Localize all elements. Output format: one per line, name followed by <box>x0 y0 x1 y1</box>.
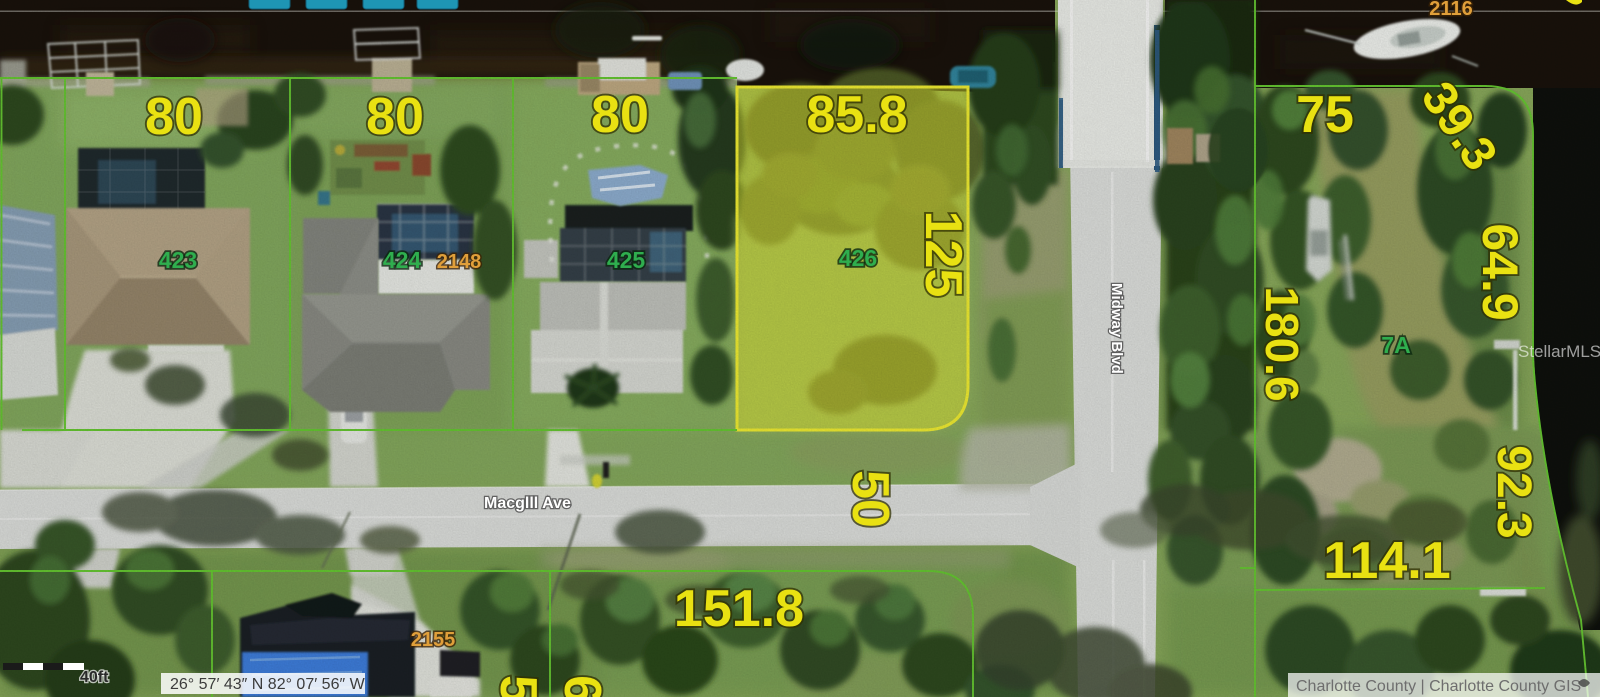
svg-text:125: 125 <box>914 211 972 298</box>
svg-text:Charlotte County | Charlotte C: Charlotte County | Charlotte County GIS <box>1296 678 1581 695</box>
svg-text:40ft: 40ft <box>80 669 109 686</box>
svg-text:2155: 2155 <box>411 629 456 651</box>
svg-text:63: 63 <box>553 675 611 697</box>
svg-text:64.9: 64.9 <box>1472 223 1528 320</box>
svg-text:151.8: 151.8 <box>674 580 804 638</box>
svg-text:75: 75 <box>1296 86 1354 144</box>
svg-text:2116: 2116 <box>1429 0 1472 20</box>
svg-text:50: 50 <box>841 470 899 528</box>
svg-text:426: 426 <box>839 245 877 271</box>
svg-text:2148: 2148 <box>437 251 482 273</box>
svg-text:425: 425 <box>607 247 646 273</box>
svg-text:85.8: 85.8 <box>806 86 907 144</box>
svg-text:92.3: 92.3 <box>1487 445 1540 538</box>
svg-text:Macglll Ave: Macglll Ave <box>484 495 571 512</box>
svg-text:114.1: 114.1 <box>1323 532 1450 590</box>
svg-text:80: 80 <box>145 88 203 146</box>
svg-text:StellarMLS: StellarMLS <box>1518 342 1600 361</box>
svg-text:80: 80 <box>591 86 649 144</box>
svg-text:50: 50 <box>489 675 547 697</box>
svg-text:180.6: 180.6 <box>1256 286 1308 401</box>
svg-text:423: 423 <box>159 247 197 273</box>
svg-text:424: 424 <box>383 247 422 273</box>
svg-text:Midway Blvd: Midway Blvd <box>1108 283 1125 374</box>
svg-text:80: 80 <box>366 88 424 146</box>
svg-text:7A: 7A <box>1381 332 1410 358</box>
svg-text:26° 57′ 43″ N 82° 07′ 56″ W: 26° 57′ 43″ N 82° 07′ 56″ W <box>170 676 366 693</box>
